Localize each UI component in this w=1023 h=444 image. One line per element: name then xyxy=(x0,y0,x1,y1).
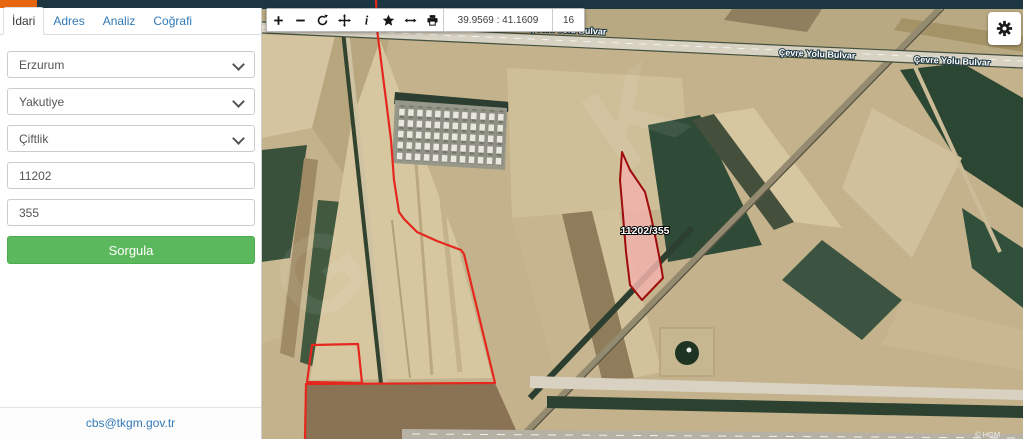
pan-icon[interactable] xyxy=(333,10,355,30)
sidebar-footer: cbs@tkgm.gov.tr xyxy=(0,407,261,439)
map-attribution: © HGM xyxy=(975,430,1000,439)
tab-cografi[interactable]: Coğrafi xyxy=(144,7,201,35)
tab-idari[interactable]: İdari xyxy=(3,7,44,35)
svg-text:i: i xyxy=(364,14,368,27)
satellite-map[interactable]: K G Çevre Yolu Bulvar Çevre Yolu Bulvar … xyxy=(262,0,1023,439)
parcel-number-input[interactable] xyxy=(7,199,255,226)
cursor-coordinates: 39.9569 : 41.1609 xyxy=(444,15,552,26)
info-icon[interactable]: i xyxy=(355,10,377,30)
contact-email-link[interactable]: cbs@tkgm.gov.tr xyxy=(86,416,175,430)
settings-button[interactable] xyxy=(988,12,1021,45)
query-sidebar: İdari Adres Analiz Coğrafi Erzurum Yakut… xyxy=(0,8,262,439)
district-select[interactable]: Yakutiye xyxy=(7,88,255,115)
map-toolbar: i 39.9569 : 41.1609 16 xyxy=(266,8,585,32)
tab-analiz[interactable]: Analiz xyxy=(94,7,145,35)
print-icon[interactable] xyxy=(421,10,443,30)
chevron-down-icon xyxy=(232,95,245,108)
refresh-icon[interactable] xyxy=(311,10,333,30)
sidebar-tabs: İdari Adres Analiz Coğrafi xyxy=(0,8,261,35)
chevron-down-icon xyxy=(232,58,245,71)
chevron-down-icon xyxy=(232,132,245,145)
district-select-value: Yakutiye xyxy=(19,95,64,109)
province-select-value: Erzurum xyxy=(19,58,64,72)
block-number-input[interactable] xyxy=(7,162,255,189)
neighborhood-select[interactable]: Çiftlik xyxy=(7,125,255,152)
zoom-out-button[interactable] xyxy=(289,10,311,30)
selected-parcel-label: 11202/355 xyxy=(620,225,669,237)
neighborhood-select-value: Çiftlik xyxy=(19,132,48,146)
parcel-query-form: Erzurum Yakutiye Çiftlik Sorgula xyxy=(0,35,261,264)
zoom-in-button[interactable] xyxy=(267,10,289,30)
query-button[interactable]: Sorgula xyxy=(7,236,255,264)
tab-adres[interactable]: Adres xyxy=(44,7,93,35)
measure-distance-icon[interactable] xyxy=(399,10,421,30)
gear-icon xyxy=(996,20,1013,37)
favorites-star-icon[interactable] xyxy=(377,10,399,30)
province-select[interactable]: Erzurum xyxy=(7,51,255,78)
zoom-level-display: 16 xyxy=(553,15,584,26)
